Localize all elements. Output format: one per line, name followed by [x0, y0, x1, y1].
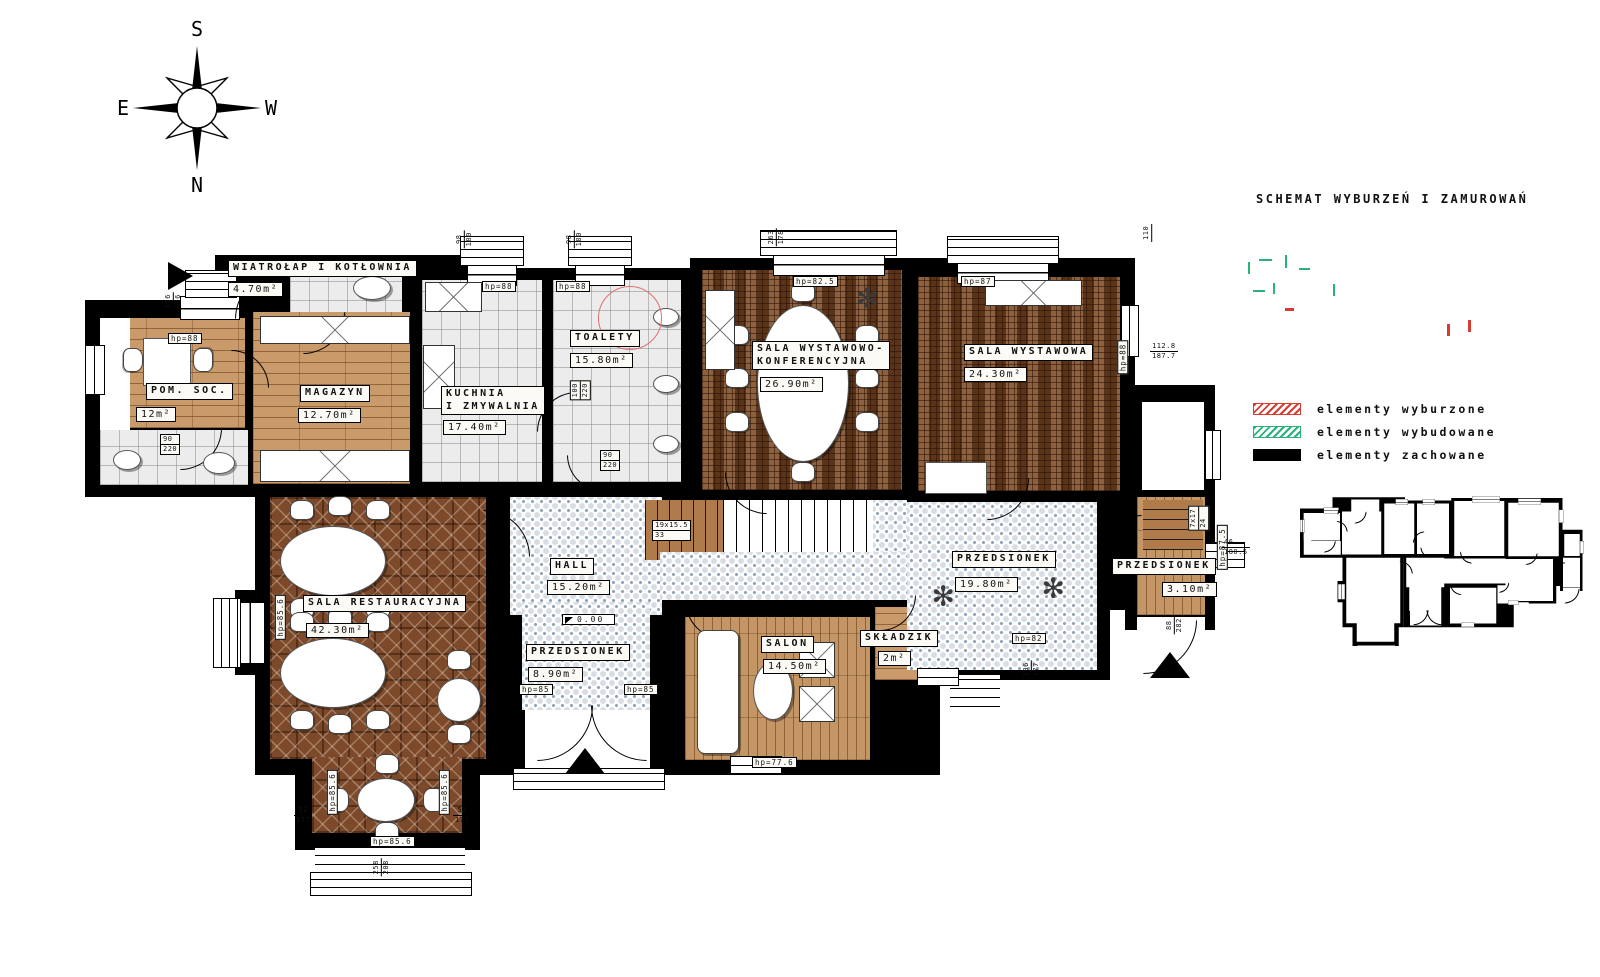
built-element-mark — [1253, 290, 1265, 292]
bench — [925, 462, 987, 494]
hp-label: hp=82.5 — [793, 276, 838, 287]
built-element-mark — [1299, 268, 1310, 270]
dimension: 258208 — [372, 858, 391, 876]
chair — [447, 724, 471, 744]
dimension: 156166 — [164, 292, 183, 310]
room-label-line: KUCHNIA — [446, 388, 506, 399]
window-sill — [213, 598, 241, 668]
room-area: 24.30m² — [964, 367, 1027, 382]
room-label-line: I ZMYWALNIA — [446, 401, 540, 412]
room-area: 42.30m² — [306, 623, 369, 638]
dimension: 98180 — [565, 230, 584, 248]
corridor-floor — [660, 552, 907, 600]
room-label: POM. SOC. — [146, 383, 233, 400]
boiler-sink — [353, 276, 391, 300]
level-marker: 0.00 — [562, 614, 615, 625]
legend-swatch-built — [1253, 426, 1301, 438]
built-element-mark — [1285, 255, 1287, 268]
room-label: PRZEDSIONEK — [952, 551, 1056, 568]
stairs-winder — [1565, 559, 1580, 572]
storage-shelf — [260, 316, 410, 344]
entrance-marker — [1150, 652, 1190, 678]
room-floor-sala-wystawowa — [1508, 503, 1559, 557]
room-area: 2m² — [878, 651, 911, 666]
room-label: PRZEDSIONEK — [526, 644, 630, 661]
compass-south: S — [191, 20, 203, 41]
restaurant-table — [280, 526, 386, 596]
room-area: 26.90m² — [760, 377, 823, 392]
hp-label: hp=88 — [168, 333, 202, 344]
room-label: SKŁADZIK — [860, 630, 938, 647]
floor-plan-sheet: S N E W — [0, 0, 1600, 977]
dimension: 88282 — [1165, 616, 1184, 634]
dimension: 52177 — [294, 806, 312, 825]
hp-label: hp=88 — [1117, 341, 1128, 375]
built-element-mark — [1259, 259, 1272, 261]
chair — [447, 650, 471, 670]
window — [1559, 510, 1564, 523]
room-label: TOALETY — [570, 330, 640, 347]
hp-label: hp=85.6 — [370, 836, 415, 847]
room-label: WIATROŁAP I KOTŁOWNIA — [228, 260, 417, 277]
chair — [725, 412, 749, 432]
demolished-element-mark — [1285, 308, 1294, 311]
demolished-element-mark — [1468, 320, 1471, 332]
dimension: 106177 — [1022, 660, 1041, 678]
sink — [203, 452, 235, 474]
room-floor-tower-bay — [1357, 623, 1395, 642]
dimension: 263178 — [767, 228, 786, 246]
plant: ✻ — [857, 280, 877, 314]
toilet — [113, 450, 141, 470]
stairs-dimension: 19x15.533 — [652, 520, 691, 541]
tower-table — [357, 778, 415, 822]
window — [1508, 601, 1519, 606]
window — [1396, 499, 1409, 505]
toilet — [653, 435, 679, 453]
mini-demolition-schematic: ✻ ✻ ✻ — [1215, 246, 1505, 408]
legend-swatch-demolished — [1253, 403, 1301, 415]
room-floor-side-room — [1142, 402, 1204, 490]
room-area: 19.80m² — [955, 577, 1018, 592]
tower-exterior-steps — [1358, 646, 1396, 653]
tower-porch-sill — [310, 872, 472, 896]
corridor-floor — [1444, 572, 1506, 584]
room-label: HALL — [550, 558, 594, 575]
demolished-element-mark — [1447, 324, 1450, 336]
sink — [653, 375, 679, 393]
window — [1472, 497, 1500, 503]
compass-rose: S N E W — [115, 20, 280, 198]
dimension: 110 — [1142, 224, 1152, 242]
hp-label: hp=85 — [519, 684, 553, 695]
cafe-table — [437, 678, 481, 722]
window — [1205, 430, 1221, 480]
window — [917, 668, 959, 686]
room-floor-przedsionek-b — [1506, 559, 1554, 601]
window — [1580, 541, 1584, 554]
room-floor-side-room — [1564, 534, 1580, 556]
built-element-mark — [1273, 283, 1275, 294]
door-dimension: 90220 — [600, 450, 620, 471]
room-area: 14.50m² — [763, 659, 826, 674]
room-floor-sala-konferencyjna — [1454, 501, 1504, 556]
dimension: 112.8187.7 — [1150, 342, 1178, 361]
legend-row-built: elementy wybudowane — [1253, 425, 1496, 439]
hp-label: hp=82 — [1012, 633, 1046, 644]
legend-label: elementy zachowane — [1317, 448, 1487, 462]
door-dimension: 100220 — [570, 380, 591, 400]
stairs-dimension: 7x1724 — [1188, 506, 1209, 531]
window — [1423, 499, 1436, 505]
legend-label: elementy wyburzone — [1317, 402, 1487, 416]
sofa — [697, 630, 739, 754]
restaurant-table — [280, 638, 386, 708]
room-area: 15.80m² — [570, 353, 633, 368]
room-floor-przedsionek-a — [1409, 584, 1441, 611]
compass-west: W — [265, 96, 278, 120]
room-area: 17.40m² — [443, 420, 506, 435]
hp-label: hp=77.6 — [752, 757, 797, 768]
kitchen-counter — [425, 282, 482, 312]
legend-row-demolished: elementy wyburzone — [1253, 402, 1487, 416]
storage-shelf — [260, 450, 410, 482]
window-sill — [947, 236, 1059, 264]
hp-label: hp=85.6 — [439, 770, 450, 815]
hp-label: hp=88 — [482, 281, 516, 292]
room-floor-hall — [510, 497, 662, 615]
room-area: 15.20m² — [547, 580, 610, 595]
room-area: 8.90m² — [528, 667, 583, 682]
window — [1300, 520, 1305, 533]
built-element-mark — [1248, 262, 1250, 274]
hp-label: hp=87 — [961, 276, 995, 287]
room-label: SALA RESTAURACYJNA — [303, 595, 466, 612]
hp-label: hp=85.6 — [275, 595, 286, 640]
chair — [193, 348, 213, 372]
window — [180, 296, 240, 320]
chair — [366, 500, 390, 520]
hp-label: hp=85.6 — [327, 770, 338, 815]
room-area: 4.70m² — [228, 282, 283, 297]
plant: ✻ — [933, 578, 953, 612]
room-area: 3.10m² — [1162, 582, 1217, 597]
dimension: 46180.5 — [1222, 538, 1250, 557]
room-label: MAGAZYN — [300, 385, 370, 402]
main-floor-plan: ✻ ✻ ✻ — [1300, 496, 1583, 654]
room-label: KUCHNIAI ZMYWALNIA — [441, 386, 545, 415]
chair — [855, 368, 879, 388]
chair — [791, 462, 815, 482]
window — [85, 345, 105, 395]
room-floor-sala-wystawowa — [918, 277, 1120, 491]
chair — [375, 754, 399, 774]
window-bay — [237, 602, 265, 664]
table — [143, 338, 191, 386]
entrance-arrow — [168, 262, 193, 290]
room-area: 12m² — [136, 407, 176, 422]
window-bay — [1338, 584, 1345, 600]
chair — [725, 368, 749, 388]
hp-label: hp=85 — [624, 684, 658, 695]
dimension: 98180 — [455, 230, 474, 248]
legend-swatch-preserved — [1253, 449, 1301, 461]
chair — [290, 500, 314, 520]
chair — [366, 710, 390, 730]
room-label: PRZEDSIONEK — [1112, 558, 1216, 575]
armchair — [799, 686, 835, 722]
room-label: SALA WYSTAWOWA — [964, 344, 1093, 361]
french-window — [1461, 623, 1474, 628]
room-label-line: SALA WYSTAWOWO- — [757, 343, 885, 354]
chair — [328, 714, 352, 734]
storage-shelf — [985, 280, 1082, 306]
room-floor-kuchnia — [1384, 504, 1414, 555]
compass-north: N — [191, 173, 203, 197]
room-label: SALON — [761, 636, 814, 653]
built-element-mark — [1333, 284, 1335, 296]
compass-east: E — [117, 96, 129, 120]
chair — [855, 412, 879, 432]
chair — [366, 612, 390, 632]
dimension: 52177 — [453, 806, 471, 825]
window — [1518, 499, 1541, 505]
chair — [328, 496, 352, 516]
room-label: SALA WYSTAWOWO-KONFERENCYJNA — [752, 341, 890, 370]
entrance-marker — [565, 748, 605, 774]
window — [1324, 508, 1339, 514]
room-floor-sala-restauracyjna — [1346, 558, 1400, 624]
legend-row-preserved: elementy zachowane — [1253, 448, 1487, 462]
chair — [290, 710, 314, 730]
room-area: 12.70m² — [298, 408, 361, 423]
cabinet — [705, 290, 735, 370]
chair — [123, 348, 143, 372]
schematic-title: SCHEMAT WYBURZEŃ I ZAMUROWAŃ — [1256, 192, 1528, 206]
legend-label: elementy wybudowane — [1317, 425, 1496, 439]
plant: ✻ — [1043, 570, 1063, 604]
hp-label: hp=88 — [556, 281, 590, 292]
door-dimension: 90220 — [160, 434, 180, 455]
room-label-line: KONFERENCYJNA — [757, 356, 868, 367]
